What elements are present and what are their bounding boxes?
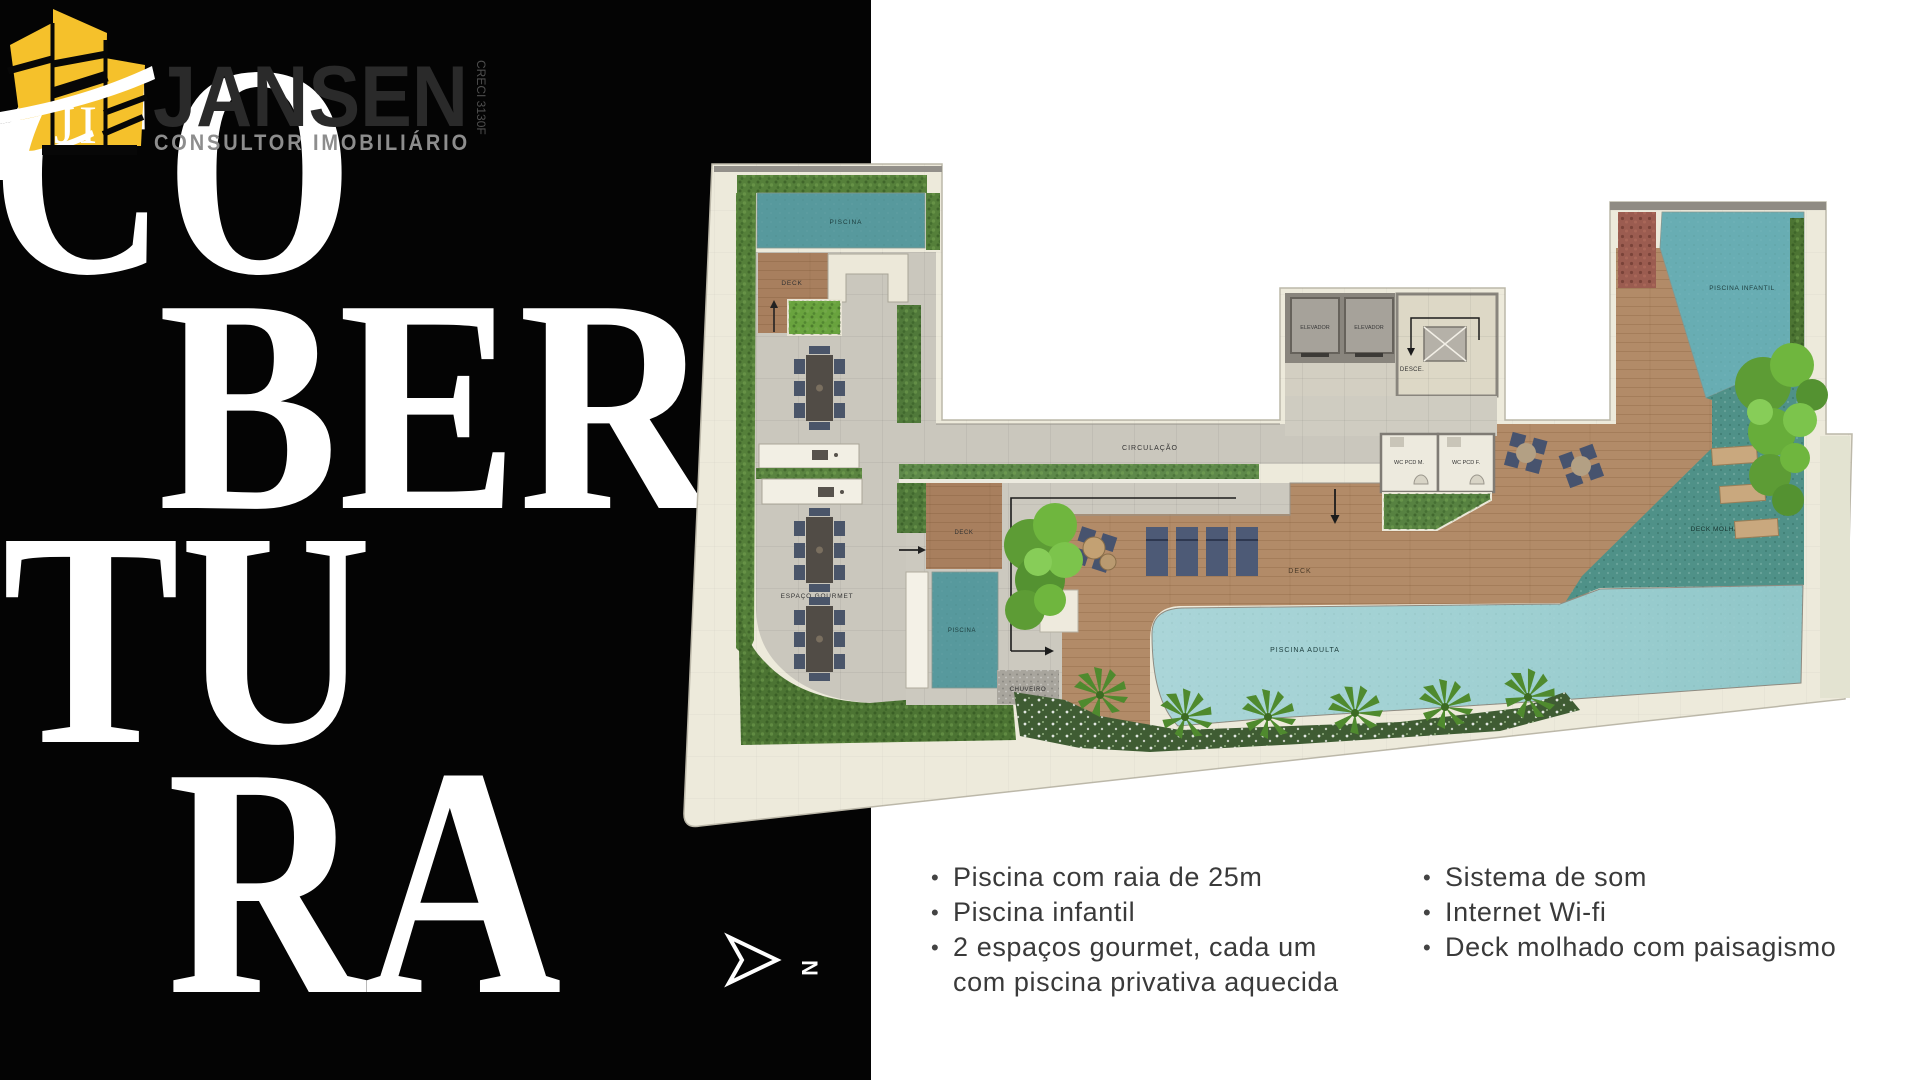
svg-text:PISCINA: PISCINA: [829, 219, 862, 226]
svg-text:PISCINA INFANTIL: PISCINA INFANTIL: [1709, 285, 1775, 292]
svg-text:CHUVEIRO: CHUVEIRO: [1010, 687, 1046, 693]
svg-text:DESCE.: DESCE.: [1400, 367, 1424, 373]
svg-text:ELEVADOR: ELEVADOR: [1300, 325, 1330, 331]
svg-text:J: J: [54, 95, 75, 155]
svg-text:WC PCD M.: WC PCD M.: [1394, 460, 1424, 466]
svg-text:N: N: [797, 960, 822, 976]
svg-text:DECK: DECK: [954, 530, 973, 536]
svg-text:PISCINA ADULTA: PISCINA ADULTA: [1270, 647, 1340, 654]
svg-text:DECK: DECK: [781, 280, 802, 287]
svg-text:I: I: [79, 95, 97, 155]
svg-text:CRECI 3130F: CRECI 3130F: [474, 60, 488, 135]
svg-text:DECK: DECK: [1288, 568, 1311, 575]
svg-text:CIRCULAÇÃO: CIRCULAÇÃO: [1122, 443, 1178, 452]
svg-text:WC PCD F.: WC PCD F.: [1452, 460, 1481, 466]
svg-text:ELEVADOR: ELEVADOR: [1354, 325, 1384, 331]
svg-text:CONSULTOR IMOBILIÁRIO: CONSULTOR IMOBILIÁRIO: [154, 130, 470, 155]
svg-text:PISCINA: PISCINA: [948, 628, 976, 634]
